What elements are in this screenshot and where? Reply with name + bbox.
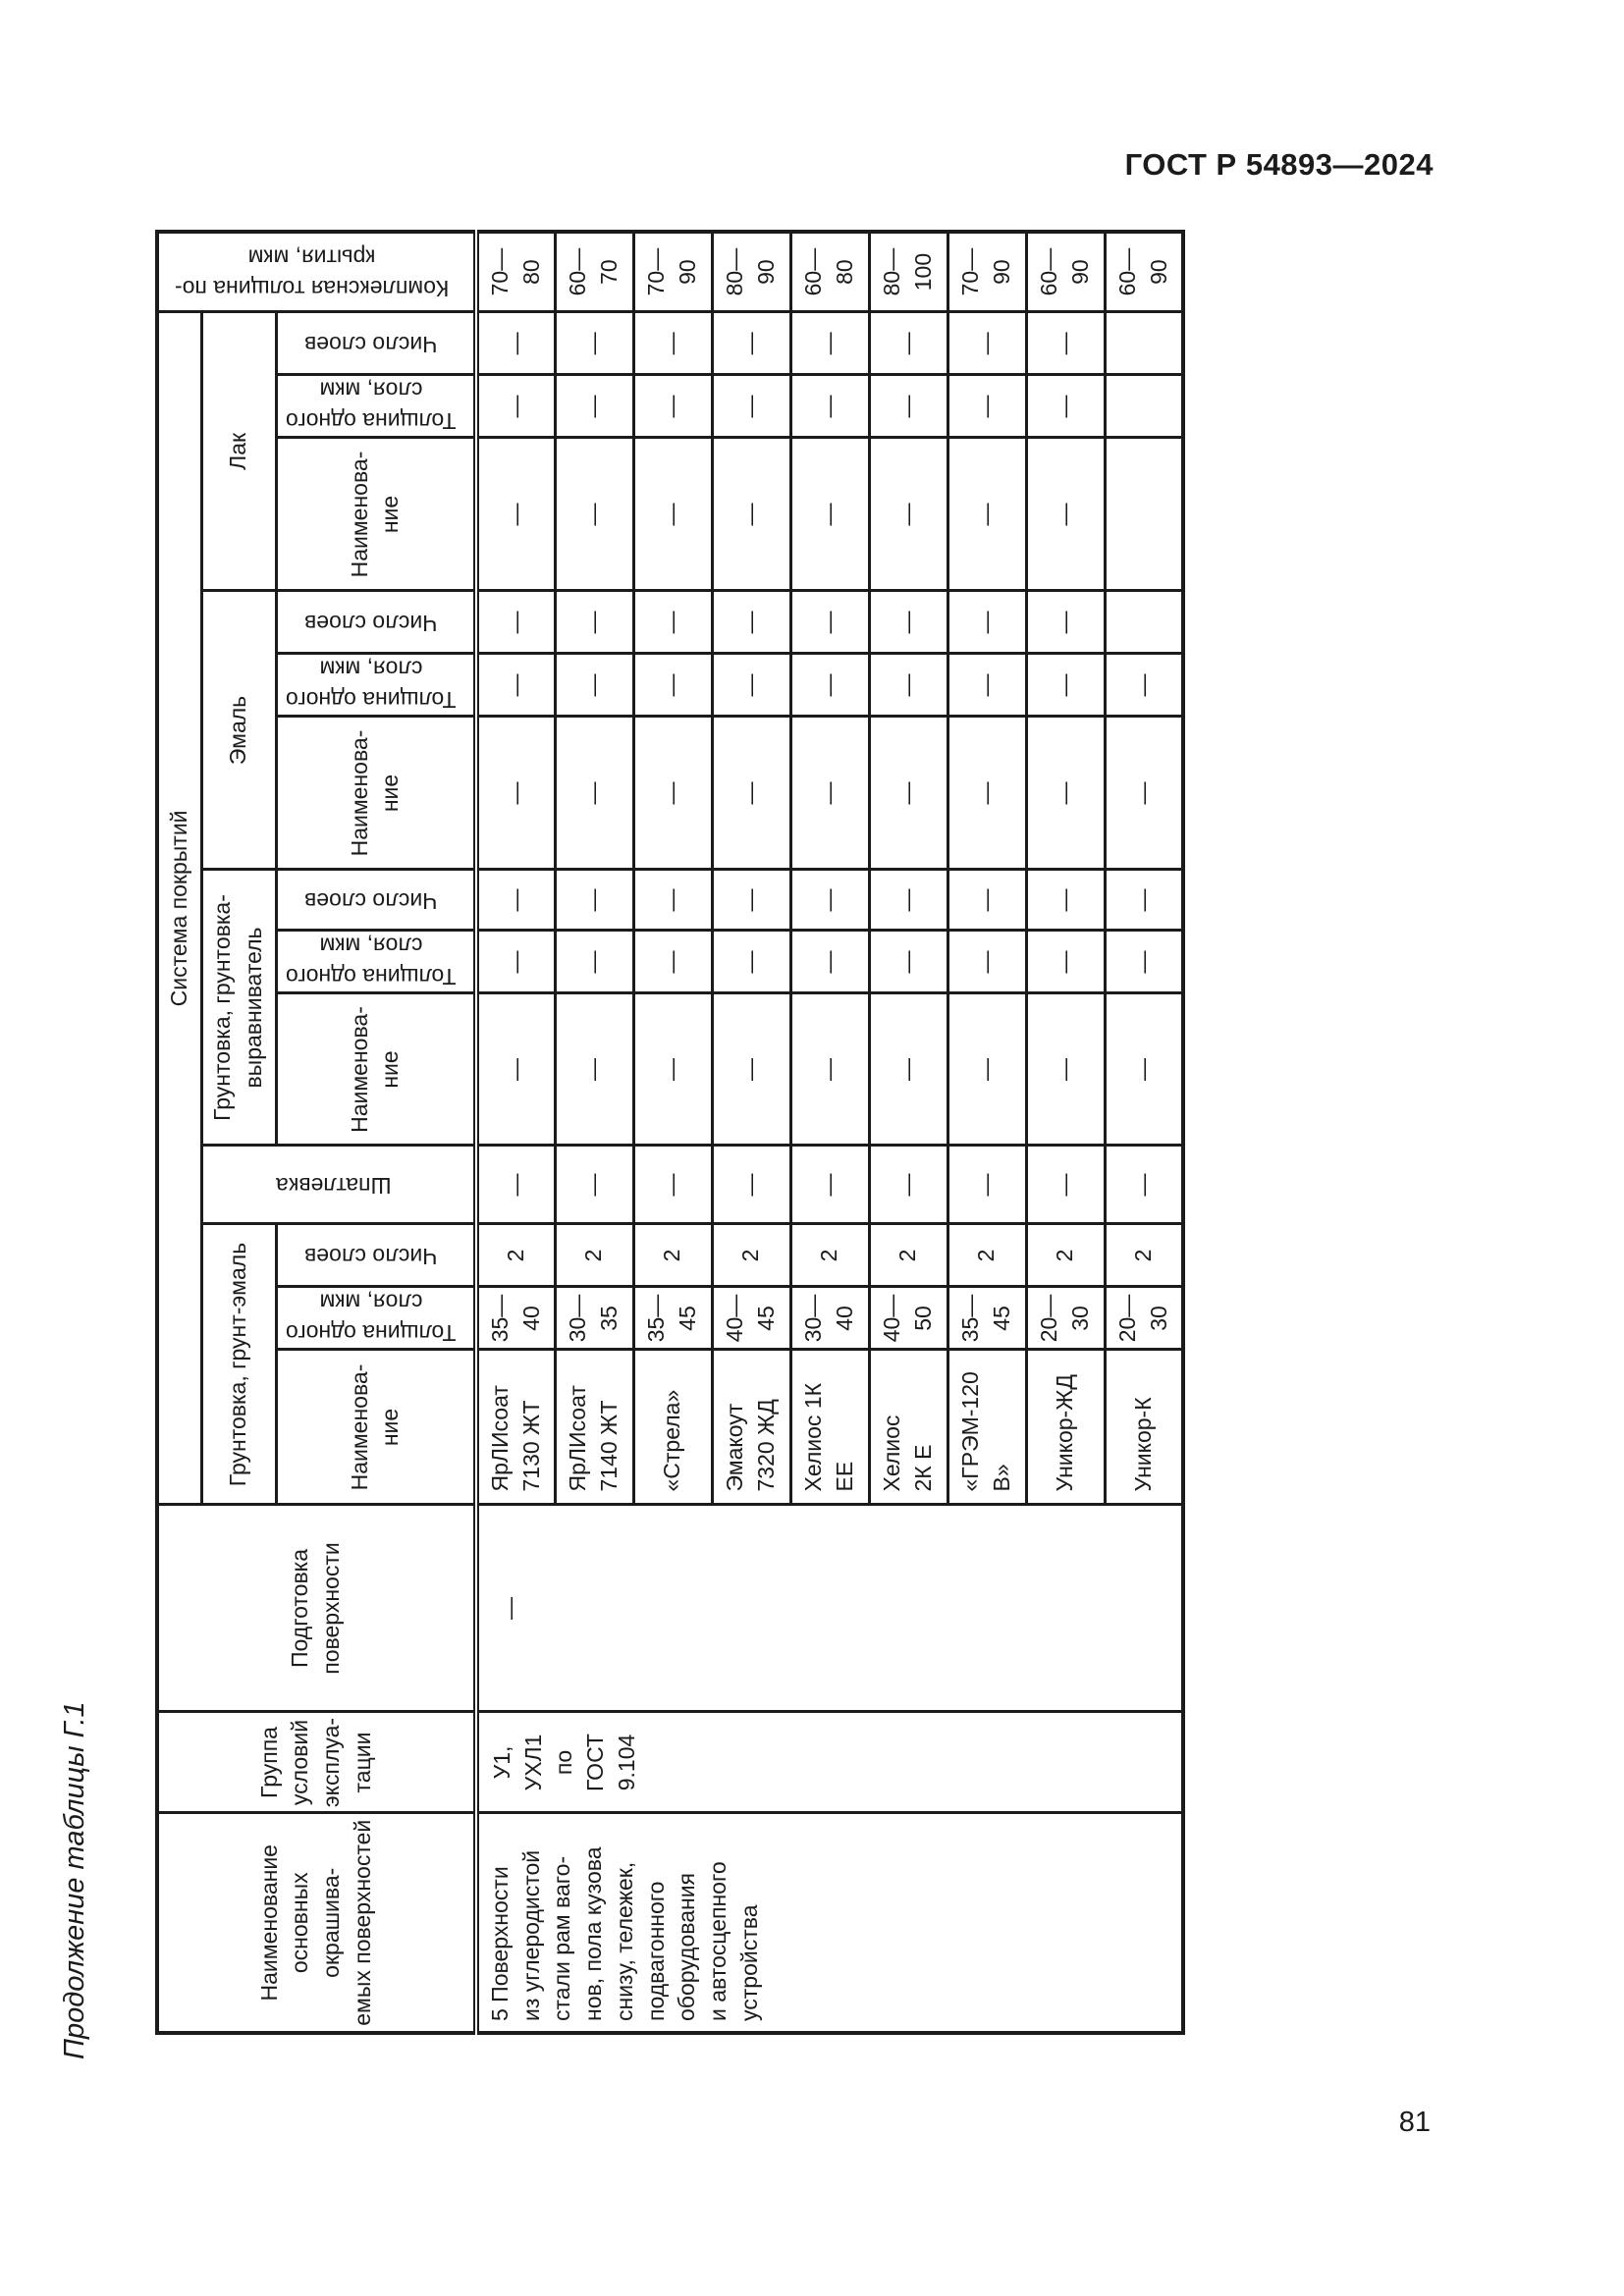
cell-en-name: — — [947, 717, 1026, 870]
cell-en-n: — — [1026, 591, 1105, 654]
cell-pe-n: 2 — [1026, 1224, 1105, 1287]
cell-pe-name: Уникор-ЖД — [1026, 1350, 1105, 1505]
cell-en-n: — — [476, 591, 555, 654]
cell-total: 60— 70 — [555, 232, 633, 312]
cell-pe-name: Эмакоут 7320 ЖД — [712, 1350, 790, 1505]
cell-pe-n: 2 — [633, 1224, 712, 1287]
cell-pl-n: — — [1105, 870, 1183, 931]
cell-lq-name: — — [869, 438, 947, 591]
cell-pl-thk: — — [1026, 931, 1105, 993]
cell-prep: — — [476, 1505, 1183, 1712]
cell-pl-name: — — [869, 993, 947, 1146]
cell-en-thk: — — [1026, 654, 1105, 717]
cell-en-n: — — [712, 591, 790, 654]
cell-total: 80— 100 — [869, 232, 947, 312]
cell-pe-n: 2 — [947, 1224, 1026, 1287]
coatings-table: Наименование основных окрашива- емых пов… — [155, 230, 1185, 2035]
cell-lq-name: — — [790, 438, 869, 591]
cell-lq-thk — [1105, 375, 1183, 438]
cell-lq-n — [1105, 312, 1183, 375]
header-row-1: Наименование основных окрашива- емых пов… — [157, 232, 201, 2033]
table-row: 5 Поверхности из углеродистой стали рам … — [476, 232, 555, 2033]
cell-pe-n: 2 — [476, 1224, 555, 1287]
cell-lq-thk: — — [947, 375, 1026, 438]
cell-pl-name: — — [712, 993, 790, 1146]
cell-pe-thk: 35— 40 — [476, 1287, 555, 1350]
cell-pe-n: 2 — [869, 1224, 947, 1287]
cell-pl-n: — — [555, 870, 633, 931]
cell-pl-n: — — [947, 870, 1026, 931]
cell-lq-name: — — [712, 438, 790, 591]
header-coating-system: Система покрытий — [157, 312, 201, 1505]
cell-lq-thk: — — [476, 375, 555, 438]
cell-pl-thk: — — [790, 931, 869, 993]
cell-en-thk: — — [712, 654, 790, 717]
cell-pe-name: «Стрела» — [633, 1350, 712, 1505]
cell-en-name: — — [712, 717, 790, 870]
header-pe-layers: Число слоев — [276, 1224, 476, 1287]
header-lq-layers: Число слоев — [276, 312, 476, 375]
cell-putty: — — [869, 1146, 947, 1224]
cell-pl-name: — — [633, 993, 712, 1146]
cell-pe-name: ЯрЛИсоат 7140 ЖТ — [555, 1350, 633, 1505]
cell-pe-n: 2 — [1105, 1224, 1183, 1287]
header-prep: Подготовка поверхности — [157, 1505, 476, 1712]
cell-pl-n: — — [476, 870, 555, 931]
cell-pl-thk: — — [633, 931, 712, 993]
cell-service-group: У1, УХЛ1 по ГОСТ 9.104 — [476, 1712, 1183, 1813]
cell-pe-thk: 35— 45 — [947, 1287, 1026, 1350]
cell-pe-thk: 30— 35 — [555, 1287, 633, 1350]
cell-putty: — — [790, 1146, 869, 1224]
cell-lq-n: — — [790, 312, 869, 375]
header-pe-thickness: Толщина одного слоя, мкм — [276, 1287, 476, 1350]
header-en-thickness: Толщина одного слоя, мкм — [276, 654, 476, 717]
cell-putty: — — [712, 1146, 790, 1224]
header-pl-layers: Число слоев — [276, 870, 476, 931]
cell-pl-thk: — — [555, 931, 633, 993]
header-en-layers: Число слоев — [276, 591, 476, 654]
header-service-group: Группа условий эксплуа- тации — [157, 1712, 476, 1813]
cell-lq-n: — — [712, 312, 790, 375]
cell-en-name: — — [555, 717, 633, 870]
cell-lq-thk: — — [869, 375, 947, 438]
cell-putty: — — [555, 1146, 633, 1224]
cell-lq-n: — — [869, 312, 947, 375]
cell-total: 60— 80 — [790, 232, 869, 312]
cell-lq-n: — — [633, 312, 712, 375]
cell-en-name: — — [1026, 717, 1105, 870]
page-number: 81 — [1355, 2107, 1431, 2139]
cell-lq-n: — — [947, 312, 1026, 375]
cell-pl-name: — — [790, 993, 869, 1146]
document-header: ГОСТ Р 54893—2024 — [1060, 147, 1434, 183]
header-lq-thickness: Толщина одного слоя, мкм — [276, 375, 476, 438]
cell-en-name: — — [633, 717, 712, 870]
cell-en-name: — — [790, 717, 869, 870]
cell-en-n: — — [790, 591, 869, 654]
cell-pe-thk: 20— 30 — [1105, 1287, 1183, 1350]
cell-en-thk: — — [869, 654, 947, 717]
header-primer-enamel-group: Грунтовка, грунт-эмаль — [201, 1224, 276, 1505]
cell-pe-thk: 30— 40 — [790, 1287, 869, 1350]
table-caption-text: Продолжение таблицы Г.1 — [59, 1716, 91, 2059]
header-pl-name: Наименова- ние — [276, 993, 476, 1146]
cell-pe-thk: 35— 45 — [633, 1287, 712, 1350]
header-pl-thickness: Толщина одного слоя, мкм — [276, 931, 476, 993]
cell-surface: 5 Поверхности из углеродистой стали рам … — [476, 1813, 1183, 2033]
cell-pe-name: ЯрЛИсоат 7130 ЖТ — [476, 1350, 555, 1505]
header-en-name: Наименова- ние — [276, 717, 476, 870]
cell-pe-thk: 40— 50 — [869, 1287, 947, 1350]
cell-pe-n: 2 — [790, 1224, 869, 1287]
cell-putty: — — [476, 1146, 555, 1224]
cell-pl-name: — — [555, 993, 633, 1146]
cell-lq-name: — — [555, 438, 633, 591]
cell-lq-n: — — [476, 312, 555, 375]
rotated-table-container: Наименование основных окрашива- емых пов… — [155, 234, 1182, 2035]
cell-lq-name: — — [1026, 438, 1105, 591]
header-enamel-group: Эмаль — [201, 591, 276, 870]
cell-en-thk: — — [1105, 654, 1183, 717]
cell-pe-name: Хелиос 1К ЕЕ — [790, 1350, 869, 1505]
cell-pl-name: — — [1105, 993, 1183, 1146]
cell-pl-n: — — [633, 870, 712, 931]
cell-en-n: — — [633, 591, 712, 654]
header-lq-name: Наименова- ние — [276, 438, 476, 591]
cell-lq-name: — — [947, 438, 1026, 591]
cell-pl-name: — — [947, 993, 1026, 1146]
cell-en-thk: — — [633, 654, 712, 717]
cell-pe-n: 2 — [555, 1224, 633, 1287]
header-putty: Шпатлевка — [201, 1146, 476, 1224]
document-page: ГОСТ Р 54893—2024 Продолжение таблицы Г.… — [0, 0, 1624, 2296]
cell-putty: — — [633, 1146, 712, 1224]
cell-en-name: — — [869, 717, 947, 870]
header-total-thickness: Комплексная толщина по- крытия, мкм — [157, 232, 476, 312]
cell-en-thk: — — [476, 654, 555, 717]
cell-en-thk: — — [947, 654, 1026, 717]
table-caption: Продолжение таблицы Г.1 — [59, 1716, 108, 2059]
cell-en-n: — — [869, 591, 947, 654]
cell-en-n: — — [947, 591, 1026, 654]
cell-pl-n: — — [790, 870, 869, 931]
cell-en-name: — — [476, 717, 555, 870]
cell-total: 70— 90 — [947, 232, 1026, 312]
cell-lq-n: — — [1026, 312, 1105, 375]
cell-pe-thk: 40— 45 — [712, 1287, 790, 1350]
cell-pe-thk: 20— 30 — [1026, 1287, 1105, 1350]
table-body: 5 Поверхности из углеродистой стали рам … — [476, 232, 1183, 2033]
cell-en-n — [1105, 591, 1183, 654]
cell-en-name: — — [1105, 717, 1183, 870]
cell-pe-n: 2 — [712, 1224, 790, 1287]
cell-pl-n: — — [1026, 870, 1105, 931]
cell-total: 60— 90 — [1105, 232, 1183, 312]
cell-pl-thk: — — [1105, 931, 1183, 993]
cell-pe-name: Хелиос 2К Е — [869, 1350, 947, 1505]
cell-pl-thk: — — [712, 931, 790, 993]
cell-lq-name: — — [633, 438, 712, 591]
cell-total: 80— 90 — [712, 232, 790, 312]
cell-lq-n: — — [555, 312, 633, 375]
cell-lq-thk: — — [555, 375, 633, 438]
cell-lq-name — [1105, 438, 1183, 591]
cell-pl-thk: — — [476, 931, 555, 993]
cell-en-thk: — — [790, 654, 869, 717]
cell-total: 70— 80 — [476, 232, 555, 312]
header-pe-name: Наименова- ние — [276, 1350, 476, 1505]
cell-pl-n: — — [712, 870, 790, 931]
cell-lq-thk: — — [1026, 375, 1105, 438]
cell-total: 70— 90 — [633, 232, 712, 312]
header-surface: Наименование основных окрашива- емых пов… — [157, 1813, 476, 2033]
cell-putty: — — [947, 1146, 1026, 1224]
cell-total: 60— 90 — [1026, 232, 1105, 312]
cell-lq-thk: — — [633, 375, 712, 438]
cell-pl-thk: — — [869, 931, 947, 993]
cell-en-n: — — [555, 591, 633, 654]
cell-putty: — — [1105, 1146, 1183, 1224]
header-primer-leveler-group: Грунтовка, грунтовка- выравниватель — [201, 870, 276, 1146]
header-lacquer-group: Лак — [201, 312, 276, 591]
cell-en-thk: — — [555, 654, 633, 717]
cell-pl-thk: — — [947, 931, 1026, 993]
cell-pl-n: — — [869, 870, 947, 931]
cell-pe-name: «ГРЭМ-120 В» — [947, 1350, 1026, 1505]
cell-lq-name: — — [476, 438, 555, 591]
cell-lq-thk: — — [712, 375, 790, 438]
cell-pe-name: Уникор-К — [1105, 1350, 1183, 1505]
cell-putty: — — [1026, 1146, 1105, 1224]
cell-pl-name: — — [1026, 993, 1105, 1146]
cell-pl-name: — — [476, 993, 555, 1146]
cell-lq-thk: — — [790, 375, 869, 438]
